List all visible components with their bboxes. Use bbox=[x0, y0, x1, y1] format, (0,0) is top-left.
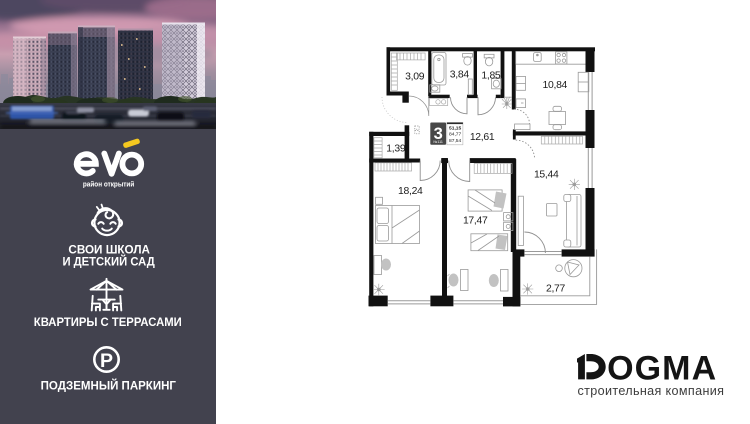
svg-text:№111: №111 bbox=[434, 140, 443, 144]
svg-text:КВАРТИРЫ С ТЕРРАСАМИ: КВАРТИРЫ С ТЕРРАСАМИ bbox=[34, 315, 182, 329]
svg-text:OGMA: OGMA bbox=[607, 349, 717, 387]
svg-text:район открытий: район открытий bbox=[83, 180, 134, 188]
svg-text:1,85: 1,85 bbox=[481, 71, 501, 82]
svg-text:17,47: 17,47 bbox=[463, 216, 488, 227]
svg-text:строительная компания: строительная компания bbox=[578, 384, 725, 398]
svg-text:12,61: 12,61 bbox=[470, 132, 495, 143]
svg-text:84,77: 84,77 bbox=[449, 132, 462, 138]
svg-text:3,84: 3,84 bbox=[450, 70, 470, 81]
svg-text:3,09: 3,09 bbox=[405, 71, 425, 82]
svg-text:10,84: 10,84 bbox=[543, 80, 568, 91]
svg-text:15,44: 15,44 bbox=[534, 169, 559, 180]
svg-text:87,54: 87,54 bbox=[449, 138, 462, 144]
svg-text:P: P bbox=[100, 350, 113, 372]
svg-text:И ДЕТСКИЙ САД: И ДЕТСКИЙ САД bbox=[62, 253, 155, 268]
svg-text:2,77: 2,77 bbox=[546, 283, 566, 294]
svg-text:ПОДЗЕМНЫЙ ПАРКИНГ: ПОДЗЕМНЫЙ ПАРКИНГ bbox=[41, 378, 176, 393]
svg-text:1,39: 1,39 bbox=[386, 143, 406, 154]
svg-text:51,15: 51,15 bbox=[449, 125, 462, 131]
svg-text:18,24: 18,24 bbox=[398, 186, 423, 197]
